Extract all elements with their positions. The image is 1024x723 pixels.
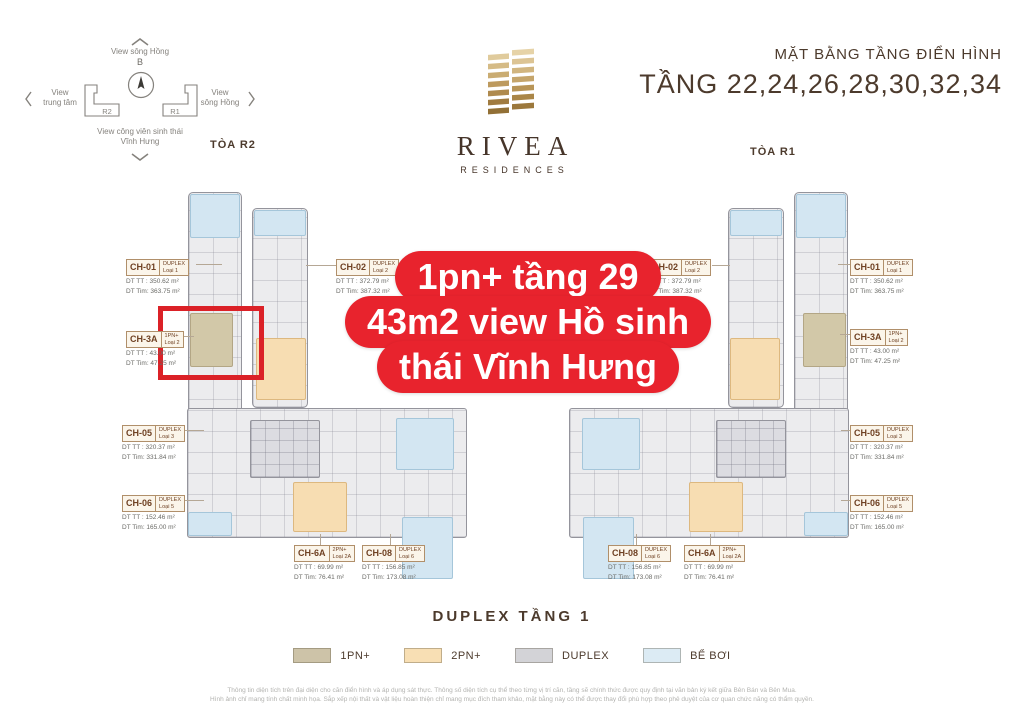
unit-area-tim: DT Tim: 331.84 m² [122,455,185,462]
plan-title-floors: TẦNG 22,24,26,28,30,32,34 [639,69,1002,100]
unit-area-tim: DT Tim: 173.08 m² [362,575,425,582]
compass-right-label: Viewsông Hồng [191,88,249,108]
pool-area [804,512,848,536]
tower-r2-core [250,420,320,478]
unit-area-tim: DT Tim: 47.25 m² [126,361,184,368]
leader-line [184,500,204,501]
pool-area [396,418,454,470]
unit-code-box: CH-08DUPLEXLoại 6 [608,545,671,562]
unit-area-1pn-ch3a [803,313,846,367]
unit-area-tt: DT TT : 350.62 m² [126,279,189,286]
pool-area [188,512,232,536]
leader-line [184,430,204,431]
tower-r1-core [716,420,786,478]
legend-item-2pn-: 2PN+ [404,648,481,663]
block-r1-label: R1 [170,107,180,116]
page-header: MẶT BẰNG TẦNG ĐIỂN HÌNH TẦNG 22,24,26,28… [639,46,1002,100]
unit-area-2pn [689,482,743,532]
unit-label-ch-06: CH-06DUPLEXLoại 5DT TT : 152.46 m²DT Tim… [850,494,913,531]
unit-label-ch-3a: CH-3A1PN+Loại 2DT TT : 43.00 m²DT Tim: 4… [126,330,184,367]
unit-area-tim: DT Tim: 173.08 m² [608,575,671,582]
unit-area-tt: DT TT : 320.37 m² [122,445,185,452]
legend-swatch [293,648,331,663]
ad-banner-line: thái Vĩnh Hưng [377,341,679,393]
tower-r1-caption: TÒA R1 [750,146,796,158]
legend-swatch [515,648,553,663]
pool-area [796,194,846,238]
chevron-down-icon [131,153,149,161]
unit-area-tt: DT TT : 152.46 m² [850,515,913,522]
leader-line [196,264,222,265]
unit-area-tt: DT TT : 69.99 m² [294,565,355,572]
tower-r2-caption: TÒA R2 [210,139,256,151]
duplex-floor-caption: DUPLEX TẦNG 1 [0,608,1024,625]
unit-label-ch-05: CH-05DUPLEXLoại 3DT TT : 320.37 m²DT Tim… [850,424,913,461]
disclaimer-text: Thông tin diện tích trên đại diện cho că… [110,686,914,705]
unit-area-tim: DT Tim: 76.41 m² [294,575,355,582]
compass-rose-icon [127,71,155,99]
logo-sub-wordmark: RESIDENCES [437,165,587,175]
legend-label: 1PN+ [340,650,370,662]
legend-label: 2PN+ [451,650,481,662]
unit-area-2pn [730,338,780,400]
unit-label-ch-6a: CH-6A2PN+Loại 2ADT TT : 69.99 m²DT Tim: … [684,544,745,581]
unit-area-tim: DT Tim: 76.41 m² [684,575,745,582]
pool-area [254,210,306,236]
unit-area-tt: DT TT : 350.62 m² [850,279,913,286]
unit-code-box: CH-3A1PN+Loại 2 [126,331,184,348]
compass-left-label: Viewtrung tâm [31,88,89,108]
unit-label-ch-08: CH-08DUPLEXLoại 6DT TT : 156.85 m²DT Tim… [362,544,425,581]
compass-top-label: View sông Hồng [25,47,255,56]
unit-code-box: CH-3A1PN+Loại 2 [850,329,908,346]
unit-area-tt: DT TT : 156.85 m² [362,565,425,572]
unit-label-ch-05: CH-05DUPLEXLoại 3DT TT : 320.37 m²DT Tim… [122,424,185,461]
unit-label-ch-08: CH-08DUPLEXLoại 6DT TT : 156.85 m²DT Tim… [608,544,671,581]
unit-area-tt: DT TT : 43.00 m² [850,349,908,356]
compass-north-letter: B [25,57,255,67]
pool-area [730,210,782,236]
plan-subtitle: MẶT BẰNG TẦNG ĐIỂN HÌNH [639,46,1002,63]
unit-code-box: CH-06DUPLEXLoại 5 [850,495,913,512]
legend-label: DUPLEX [562,650,609,662]
rivea-logo: RIVEA RESIDENCES [437,44,587,175]
unit-area-tt: DT TT : 69.99 m² [684,565,745,572]
pool-area [190,194,240,238]
unit-area-tim: DT Tim: 47.25 m² [850,359,908,366]
unit-area-tt: DT TT : 156.85 m² [608,565,671,572]
unit-code-box: CH-05DUPLEXLoại 3 [850,425,913,442]
unit-label-ch-6a: CH-6A2PN+Loại 2ADT TT : 69.99 m²DT Tim: … [294,544,355,581]
unit-code-box: CH-05DUPLEXLoại 3 [122,425,185,442]
unit-code-box: CH-08DUPLEXLoại 6 [362,545,425,562]
unit-area-tt: DT TT : 320.37 m² [850,445,913,452]
unit-label-ch-06: CH-06DUPLEXLoại 5DT TT : 152.46 m²DT Tim… [122,494,185,531]
unit-area-tim: DT Tim: 165.00 m² [122,525,185,532]
unit-code-box: CH-01DUPLEXLoại 1 [126,259,189,276]
unit-code-box: CH-6A2PN+Loại 2A [684,545,745,562]
unit-label-ch-3a: CH-3A1PN+Loại 2DT TT : 43.00 m²DT Tim: 4… [850,328,908,365]
unit-code-box: CH-6A2PN+Loại 2A [294,545,355,562]
flyer-page: View sông Hồng B R2 R1 Viewtrung tâm Vie… [0,0,1024,723]
unit-code-box: CH-06DUPLEXLoại 5 [122,495,185,512]
legend-label: BỂ BƠI [690,650,731,662]
unit-area-tim: DT Tim: 363.75 m² [126,289,189,296]
unit-area-tt: DT TT : 43.00 m² [126,351,184,358]
legend-item-duplex: DUPLEX [515,648,609,663]
unit-label-ch-01: CH-01DUPLEXLoại 1DT TT : 350.62 m²DT Tim… [850,258,913,295]
chevron-right-icon [248,91,255,107]
unit-label-ch-01: CH-01DUPLEXLoại 1DT TT : 350.62 m²DT Tim… [126,258,189,295]
unit-area-tt: DT TT : 152.46 m² [122,515,185,522]
unit-code-box: CH-01DUPLEXLoại 1 [850,259,913,276]
unit-area-tim: DT Tim: 363.75 m² [850,289,913,296]
pool-area [582,418,640,470]
legend-swatch [404,648,442,663]
unit-area-2pn [293,482,347,532]
ad-banner: 1pn+ tầng 29 43m2 view Hồ sinh thái Vĩnh… [330,251,726,393]
logo-wordmark: RIVEA [437,131,587,162]
logo-mark-icon [486,44,538,118]
legend-item-b-b-i: BỂ BƠI [643,648,731,663]
legend-swatch [643,648,681,663]
legend: 1PN+2PN+DUPLEXBỂ BƠI [0,648,1024,663]
unit-area-tim: DT Tim: 331.84 m² [850,455,913,462]
unit-area-tim: DT Tim: 165.00 m² [850,525,913,532]
chevron-up-icon [131,38,149,46]
legend-item-1pn-: 1PN+ [293,648,370,663]
block-r2-label: R2 [102,107,112,116]
